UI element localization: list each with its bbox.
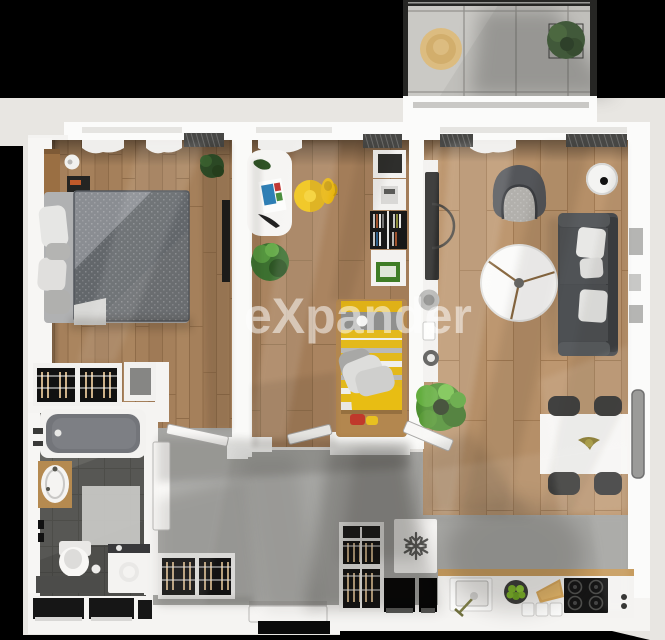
svg-text:eXpander: eXpander [244,288,472,344]
